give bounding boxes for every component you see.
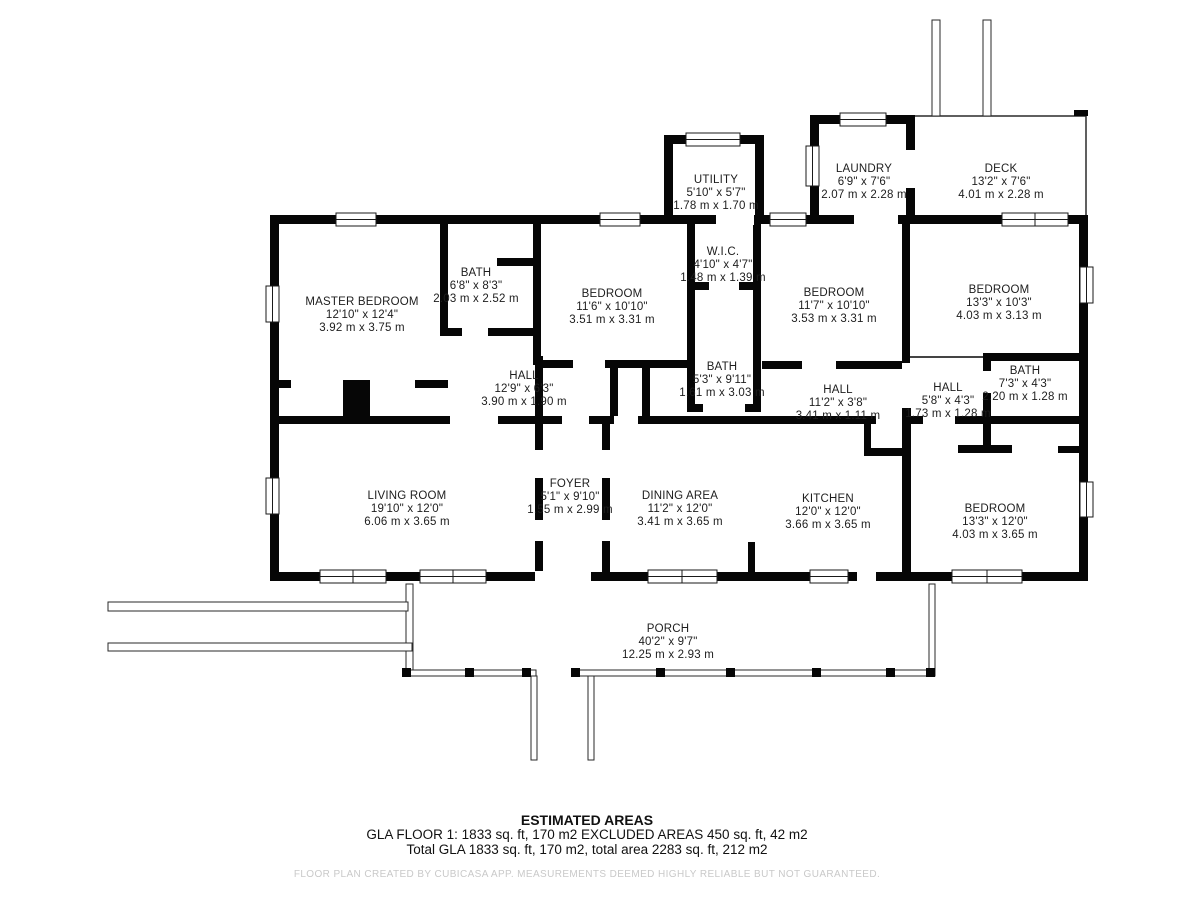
- room-name: DECK: [958, 163, 1043, 176]
- room-name: BATH: [433, 267, 518, 280]
- room-dims-metric: 1.78 m x 1.70 m: [673, 200, 758, 213]
- room-name: BEDROOM: [569, 288, 654, 301]
- room-dims-metric: 1.48 m x 1.39 m: [680, 272, 765, 285]
- room-dims-metric: 3.90 m x 1.90 m: [481, 396, 566, 409]
- room-dims-imperial: 11'2" x 3'8": [796, 397, 881, 410]
- room-label-bath-2: BATH 5'3" x 9'11" 1.61 m x 3.03 m: [679, 361, 764, 400]
- room-name: W.I.C.: [680, 246, 765, 259]
- room-dims-imperial: 13'3" x 10'3": [956, 297, 1041, 310]
- room-dims-imperial: 11'2" x 12'0": [637, 503, 722, 516]
- room-name: MASTER BEDROOM: [305, 296, 418, 309]
- room-dims-imperial: 40'2" x 9'7": [622, 636, 714, 649]
- room-label-bedroom-4: BEDROOM 13'3" x 10'3" 4.03 m x 3.13 m: [956, 284, 1041, 323]
- room-label-wic: W.I.C. 4'10" x 4'7" 1.48 m x 1.39 m: [680, 246, 765, 285]
- room-dims-metric: 1.73 m x 1.28 m: [905, 408, 990, 421]
- room-name: BEDROOM: [791, 287, 876, 300]
- room-dims-imperial: 12'9" x 6'3": [481, 383, 566, 396]
- room-dims-metric: 1.55 m x 2.99 m: [527, 504, 612, 517]
- room-dims-imperial: 12'0" x 12'0": [785, 506, 870, 519]
- porch-outline: [108, 584, 935, 760]
- floor-plan-drawing: [0, 0, 1200, 900]
- room-label-hall-2: HALL 11'2" x 3'8" 3.41 m x 1.11 m: [796, 384, 881, 423]
- room-dims-metric: 4.03 m x 3.13 m: [956, 310, 1041, 323]
- room-label-living-room: LIVING ROOM 19'10" x 12'0" 6.06 m x 3.65…: [364, 490, 449, 529]
- room-dims-imperial: 5'1" x 9'10": [527, 491, 612, 504]
- room-dims-imperial: 13'2" x 7'6": [958, 176, 1043, 189]
- room-label-bedroom-2: BEDROOM 11'6" x 10'10" 3.51 m x 3.31 m: [569, 288, 654, 327]
- room-label-kitchen: KITCHEN 12'0" x 12'0" 3.66 m x 3.65 m: [785, 493, 870, 532]
- room-dims-metric: 2.03 m x 2.52 m: [433, 293, 518, 306]
- room-label-foyer: FOYER 5'1" x 9'10" 1.55 m x 2.99 m: [527, 478, 612, 517]
- room-dims-imperial: 7'3" x 4'3": [982, 378, 1067, 391]
- room-dims-imperial: 6'9" x 7'6": [821, 176, 906, 189]
- room-dims-metric: 2.07 m x 2.28 m: [821, 189, 906, 202]
- room-name: KITCHEN: [785, 493, 870, 506]
- room-name: BEDROOM: [956, 284, 1041, 297]
- room-label-dining-area: DINING AREA 11'2" x 12'0" 3.41 m x 3.65 …: [637, 490, 722, 529]
- room-dims-metric: 3.66 m x 3.65 m: [785, 519, 870, 532]
- room-dims-imperial: 11'6" x 10'10": [569, 301, 654, 314]
- room-dims-metric: 3.51 m x 3.31 m: [569, 314, 654, 327]
- room-label-porch: PORCH 40'2" x 9'7" 12.25 m x 2.93 m: [622, 623, 714, 662]
- room-name: LAUNDRY: [821, 163, 906, 176]
- room-dims-metric: 3.41 m x 3.65 m: [637, 516, 722, 529]
- room-label-utility: UTILITY 5'10" x 5'7" 1.78 m x 1.70 m: [673, 174, 758, 213]
- room-dims-imperial: 4'10" x 4'7": [680, 259, 765, 272]
- room-dims-imperial: 5'10" x 5'7": [673, 187, 758, 200]
- floor-plan-canvas: MASTER BEDROOM 12'10" x 12'4" 3.92 m x 3…: [0, 0, 1200, 900]
- room-label-bath-3: BATH 7'3" x 4'3" 2.20 m x 1.28 m: [982, 365, 1067, 404]
- room-dims-imperial: 11'7" x 10'10": [791, 300, 876, 313]
- room-label-hall-3: HALL 5'8" x 4'3" 1.73 m x 1.28 m: [905, 382, 990, 421]
- room-label-bath-1: BATH 6'8" x 8'3" 2.03 m x 2.52 m: [433, 267, 518, 306]
- room-dims-metric: 3.92 m x 3.75 m: [305, 322, 418, 335]
- room-label-bedroom-5: BEDROOM 13'3" x 12'0" 4.03 m x 3.65 m: [952, 503, 1037, 542]
- room-name: BATH: [679, 361, 764, 374]
- room-dims-metric: 6.06 m x 3.65 m: [364, 516, 449, 529]
- room-label-master-bedroom: MASTER BEDROOM 12'10" x 12'4" 3.92 m x 3…: [305, 296, 418, 335]
- room-dims-imperial: 13'3" x 12'0": [952, 516, 1037, 529]
- disclaimer-text: FLOOR PLAN CREATED BY CUBICASA APP. MEAS…: [87, 869, 1087, 880]
- room-dims-metric: 2.20 m x 1.28 m: [982, 391, 1067, 404]
- estimated-areas-block: ESTIMATED AREAS GLA FLOOR 1: 1833 sq. ft…: [87, 813, 1087, 857]
- room-name: HALL: [796, 384, 881, 397]
- room-dims-metric: 3.41 m x 1.11 m: [796, 410, 881, 423]
- room-dims-imperial: 5'8" x 4'3": [905, 395, 990, 408]
- room-name: HALL: [905, 382, 990, 395]
- room-label-bedroom-3: BEDROOM 11'7" x 10'10" 3.53 m x 3.31 m: [791, 287, 876, 326]
- room-dims-metric: 3.53 m x 3.31 m: [791, 313, 876, 326]
- room-dims-imperial: 5'3" x 9'11": [679, 374, 764, 387]
- room-name: BATH: [982, 365, 1067, 378]
- room-name: LIVING ROOM: [364, 490, 449, 503]
- room-dims-imperial: 6'8" x 8'3": [433, 280, 518, 293]
- room-dims-imperial: 12'10" x 12'4": [305, 309, 418, 322]
- room-label-hall-1: HALL 12'9" x 6'3" 3.90 m x 1.90 m: [481, 370, 566, 409]
- room-dims-metric: 4.03 m x 3.65 m: [952, 529, 1037, 542]
- room-name: UTILITY: [673, 174, 758, 187]
- gla-floor-line: GLA FLOOR 1: 1833 sq. ft, 170 m2 EXCLUDE…: [87, 828, 1087, 843]
- room-name: FOYER: [527, 478, 612, 491]
- room-dims-metric: 12.25 m x 2.93 m: [622, 649, 714, 662]
- room-dims-metric: 1.61 m x 3.03 m: [679, 387, 764, 400]
- room-name: DINING AREA: [637, 490, 722, 503]
- room-name: HALL: [481, 370, 566, 383]
- room-name: PORCH: [622, 623, 714, 636]
- room-dims-metric: 4.01 m x 2.28 m: [958, 189, 1043, 202]
- room-dims-imperial: 19'10" x 12'0": [364, 503, 449, 516]
- room-label-deck: DECK 13'2" x 7'6" 4.01 m x 2.28 m: [958, 163, 1043, 202]
- room-label-laundry: LAUNDRY 6'9" x 7'6" 2.07 m x 2.28 m: [821, 163, 906, 202]
- estimated-areas-title: ESTIMATED AREAS: [87, 813, 1087, 828]
- total-gla-line: Total GLA 1833 sq. ft, 170 m2, total are…: [87, 843, 1087, 858]
- room-name: BEDROOM: [952, 503, 1037, 516]
